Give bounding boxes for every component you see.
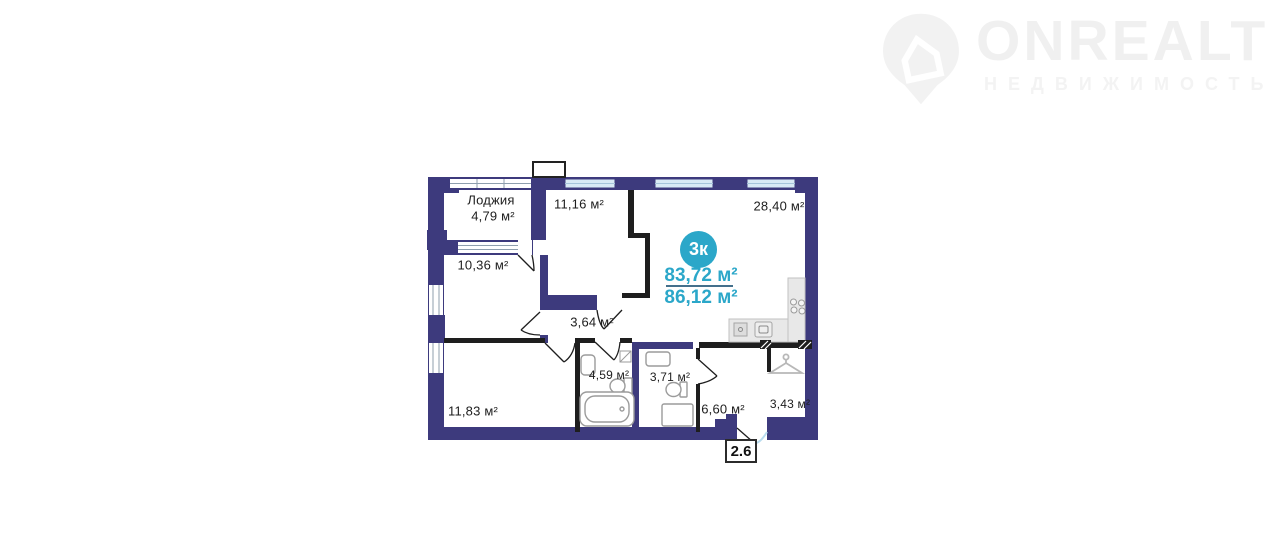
room-label-6-60: 6,60 м² — [701, 402, 745, 417]
washing-machine-icon — [662, 404, 693, 426]
room-label-loggia-name: Лоджия — [467, 193, 514, 208]
room-label-11-83: 11,83 м² — [448, 404, 498, 419]
unit-number-badge: 2.6 — [725, 439, 757, 463]
bathtub-icon — [580, 392, 634, 426]
bath-vent-icon — [620, 351, 631, 362]
room-label-3-64: 3,64 м² — [570, 315, 614, 330]
kitchen-counter — [729, 278, 805, 342]
washer-sink-icon — [646, 352, 670, 366]
logo-brand: ONREALT — [976, 12, 1274, 71]
room-label-3-43: 3,43 м² — [770, 397, 810, 411]
floorplan: Лоджия 4,79 м² 11,16 м² 28,40 м² 10,36 м… — [415, 155, 835, 470]
vent-shaft — [533, 162, 565, 177]
room-label-28-40: 28,40 м² — [753, 199, 804, 214]
logo-text: ONREALT НЕДВИЖИМОСТЬ — [976, 12, 1274, 95]
toilet-icon-2 — [666, 382, 687, 397]
room-count-badge: 3к — [680, 231, 717, 268]
floorplan-page: ONREALT НЕДВИЖИМОСТЬ — [0, 0, 1280, 557]
room-label-10-36: 10,36 м² — [457, 258, 508, 273]
room-label-3-71: 3,71 м² — [650, 370, 690, 384]
room-label-loggia-area: 4,79 м² — [471, 209, 515, 224]
hanger-icon — [770, 354, 802, 373]
total-area-label: 86,12 м² — [664, 287, 737, 309]
room-label-11-16: 11,16 м² — [554, 197, 604, 212]
logo: ONREALT НЕДВИЖИМОСТЬ — [880, 12, 1274, 106]
logo-subtitle: НЕДВИЖИМОСТЬ — [976, 74, 1274, 95]
living-area-label: 83,72 м² — [664, 265, 737, 287]
room-label-4-59: 4,59 м² — [589, 368, 629, 382]
logo-house-pin-icon — [880, 12, 962, 106]
